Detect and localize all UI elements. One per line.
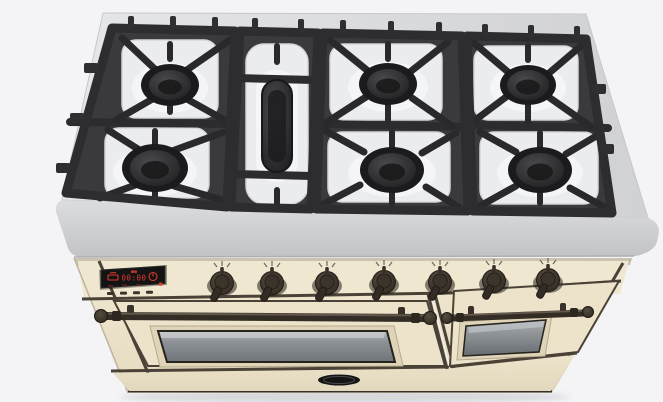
handle2-ball-right [583, 307, 594, 318]
cooktop-edge-line [74, 256, 634, 257]
handle2-ball-left [442, 313, 453, 324]
grate-bar-left [70, 122, 230, 124]
cooktop [56, 13, 659, 257]
handle-ball-left [95, 310, 108, 323]
handle2-collar-left [456, 313, 464, 322]
grate-bar-griddle-bottom [233, 174, 312, 176]
range-cooker-render: 00:00 [0, 0, 663, 402]
product-render-stage: 00:00 [0, 0, 663, 402]
main-oven-door[interactable] [114, 301, 445, 367]
handle-ball-right [424, 312, 437, 325]
glass-reflection [160, 332, 385, 338]
display-time: 00:00 [121, 274, 146, 283]
display-indicator [159, 283, 162, 286]
handle2-collar-right [570, 308, 578, 317]
handle-collar-right [411, 313, 420, 323]
secondary-oven-door[interactable] [450, 281, 619, 366]
handle-bar [106, 316, 426, 318]
handle-collar-left [112, 311, 121, 321]
